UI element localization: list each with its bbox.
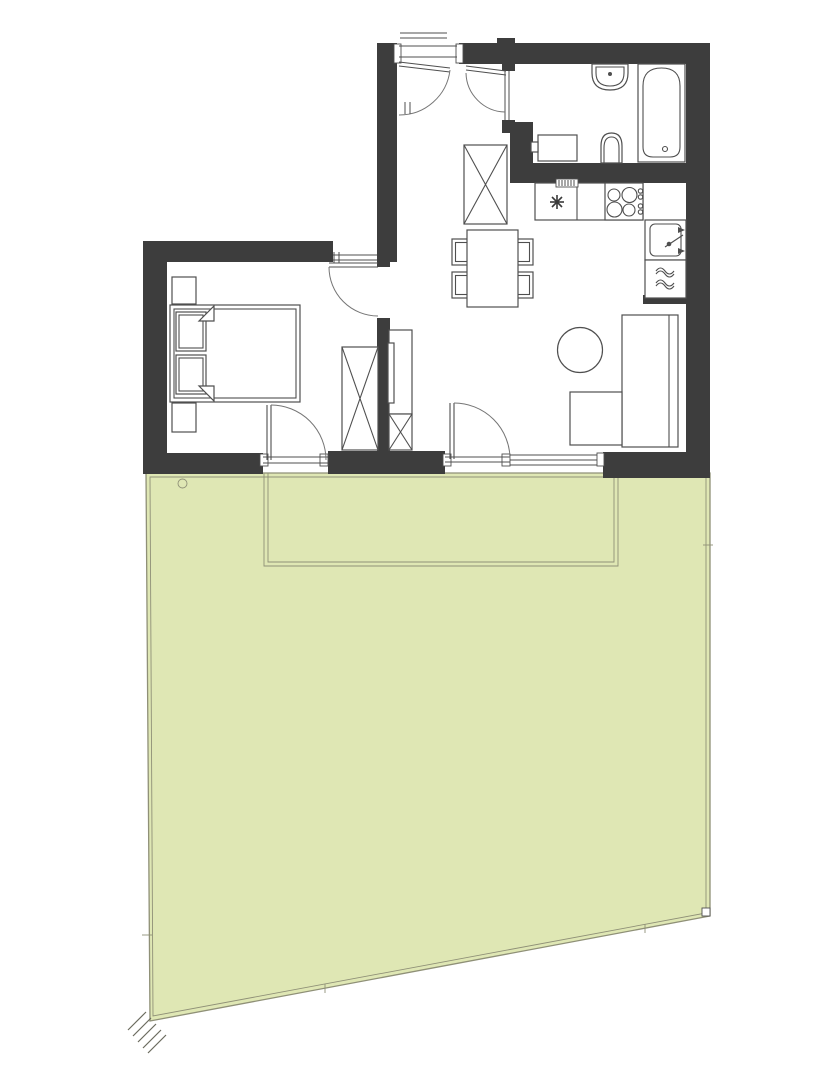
sofa-short-section [570, 392, 622, 445]
nightstand-bottom [172, 403, 196, 432]
washing-machine [531, 135, 577, 161]
vent-grille [556, 179, 578, 187]
hall-wardrobe [464, 145, 507, 224]
kitchen-sink [645, 220, 686, 260]
bath-partition-block-top [502, 58, 515, 71]
dining-set [452, 230, 533, 307]
bedroom-door-jamb-top [377, 258, 390, 267]
garden-area [128, 473, 713, 1053]
bedroom-terrace-door [260, 405, 328, 466]
bedroom-terrace-door-swing-arc [271, 405, 326, 460]
tv-cabinet [388, 330, 412, 414]
bedroom [170, 277, 378, 450]
floor-plan-drawing [0, 0, 818, 1080]
entry-jamb-left [394, 44, 401, 63]
cooktop [605, 183, 643, 220]
bottom-wall-middle [328, 451, 445, 474]
dishwasher [645, 260, 686, 298]
left-wall [143, 241, 167, 474]
tv [388, 343, 394, 403]
bathroom [531, 64, 685, 163]
star-symbol [550, 195, 564, 209]
hall-left-wall [377, 43, 397, 262]
garden-lawn [146, 473, 710, 1021]
bottom-wall-left [143, 453, 263, 474]
top-wall-bump [497, 38, 515, 44]
bedroom-door-jamb-bottom [377, 318, 390, 330]
bottom-wall-right [603, 452, 710, 478]
top-wall [459, 43, 710, 64]
bedroom-door-swing-arc [329, 267, 378, 316]
living-wardrobe [389, 414, 412, 450]
sofa-long-section [622, 315, 678, 447]
kitchen [535, 179, 686, 298]
double-bed [170, 305, 300, 402]
nightstand-top [172, 277, 196, 304]
bedroom-top-wall [143, 241, 333, 262]
floor-plan-page [0, 0, 818, 1080]
toilet [601, 133, 622, 163]
bedroom-wardrobe [342, 347, 378, 450]
living-window [510, 453, 604, 466]
entry-door [394, 33, 463, 115]
entry-door-swing-arc [399, 70, 450, 115]
entry-jamb-right [456, 44, 463, 63]
bedroom-door [329, 252, 378, 316]
dining-table [467, 230, 518, 307]
right-wall [686, 43, 710, 478]
round-coffee-table [558, 328, 603, 373]
bathtub [638, 64, 685, 162]
living-terrace-door-swing-arc [454, 403, 510, 459]
bath-kitchen-wall-block [510, 122, 533, 183]
living-terrace-door [443, 403, 510, 466]
bathroom-door-swing-arc [466, 73, 505, 112]
fence-post [702, 908, 710, 916]
washbasin [592, 64, 628, 90]
bathroom-door [466, 66, 509, 120]
